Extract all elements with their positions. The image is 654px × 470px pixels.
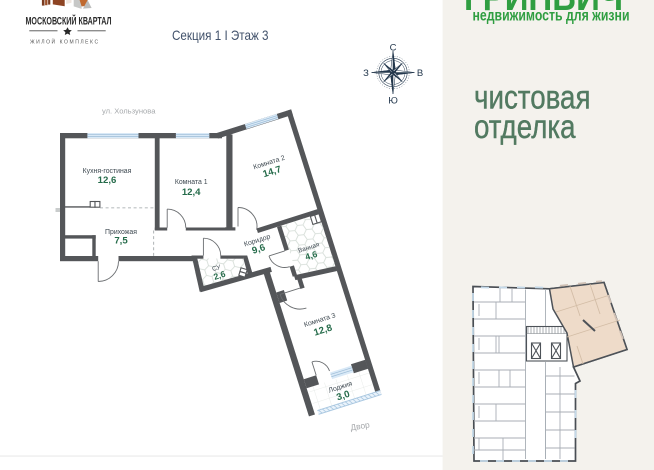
svg-text:Комната 1: Комната 1	[175, 179, 208, 186]
svg-text:7,5: 7,5	[114, 236, 128, 247]
svg-text:З: З	[363, 68, 369, 79]
svg-text:ЖИЛОЙ КОМПЛЕКС: ЖИЛОЙ КОМПЛЕКС	[30, 38, 100, 46]
svg-text:12,4: 12,4	[182, 187, 201, 198]
svg-text:Секция 1 I Этаж 3: Секция 1 I Этаж 3	[172, 28, 269, 43]
svg-text:В: В	[417, 68, 423, 79]
svg-text:ул. Хользунова: ул. Хользунова	[102, 107, 156, 116]
svg-text:отделка: отделка	[474, 108, 576, 145]
svg-text:МОСКОВСКИЙ КВАРТАЛ: МОСКОВСКИЙ КВАРТАЛ	[25, 14, 111, 28]
svg-text:С: С	[390, 42, 397, 53]
svg-text:12,6: 12,6	[98, 175, 117, 186]
svg-text:недвижимость для жизни: недвижимость для жизни	[473, 8, 630, 25]
svg-text:Кухня-гостиная: Кухня-гостиная	[83, 168, 132, 175]
svg-text:Ю: Ю	[388, 96, 398, 107]
svg-text:Двор: Двор	[350, 419, 371, 432]
